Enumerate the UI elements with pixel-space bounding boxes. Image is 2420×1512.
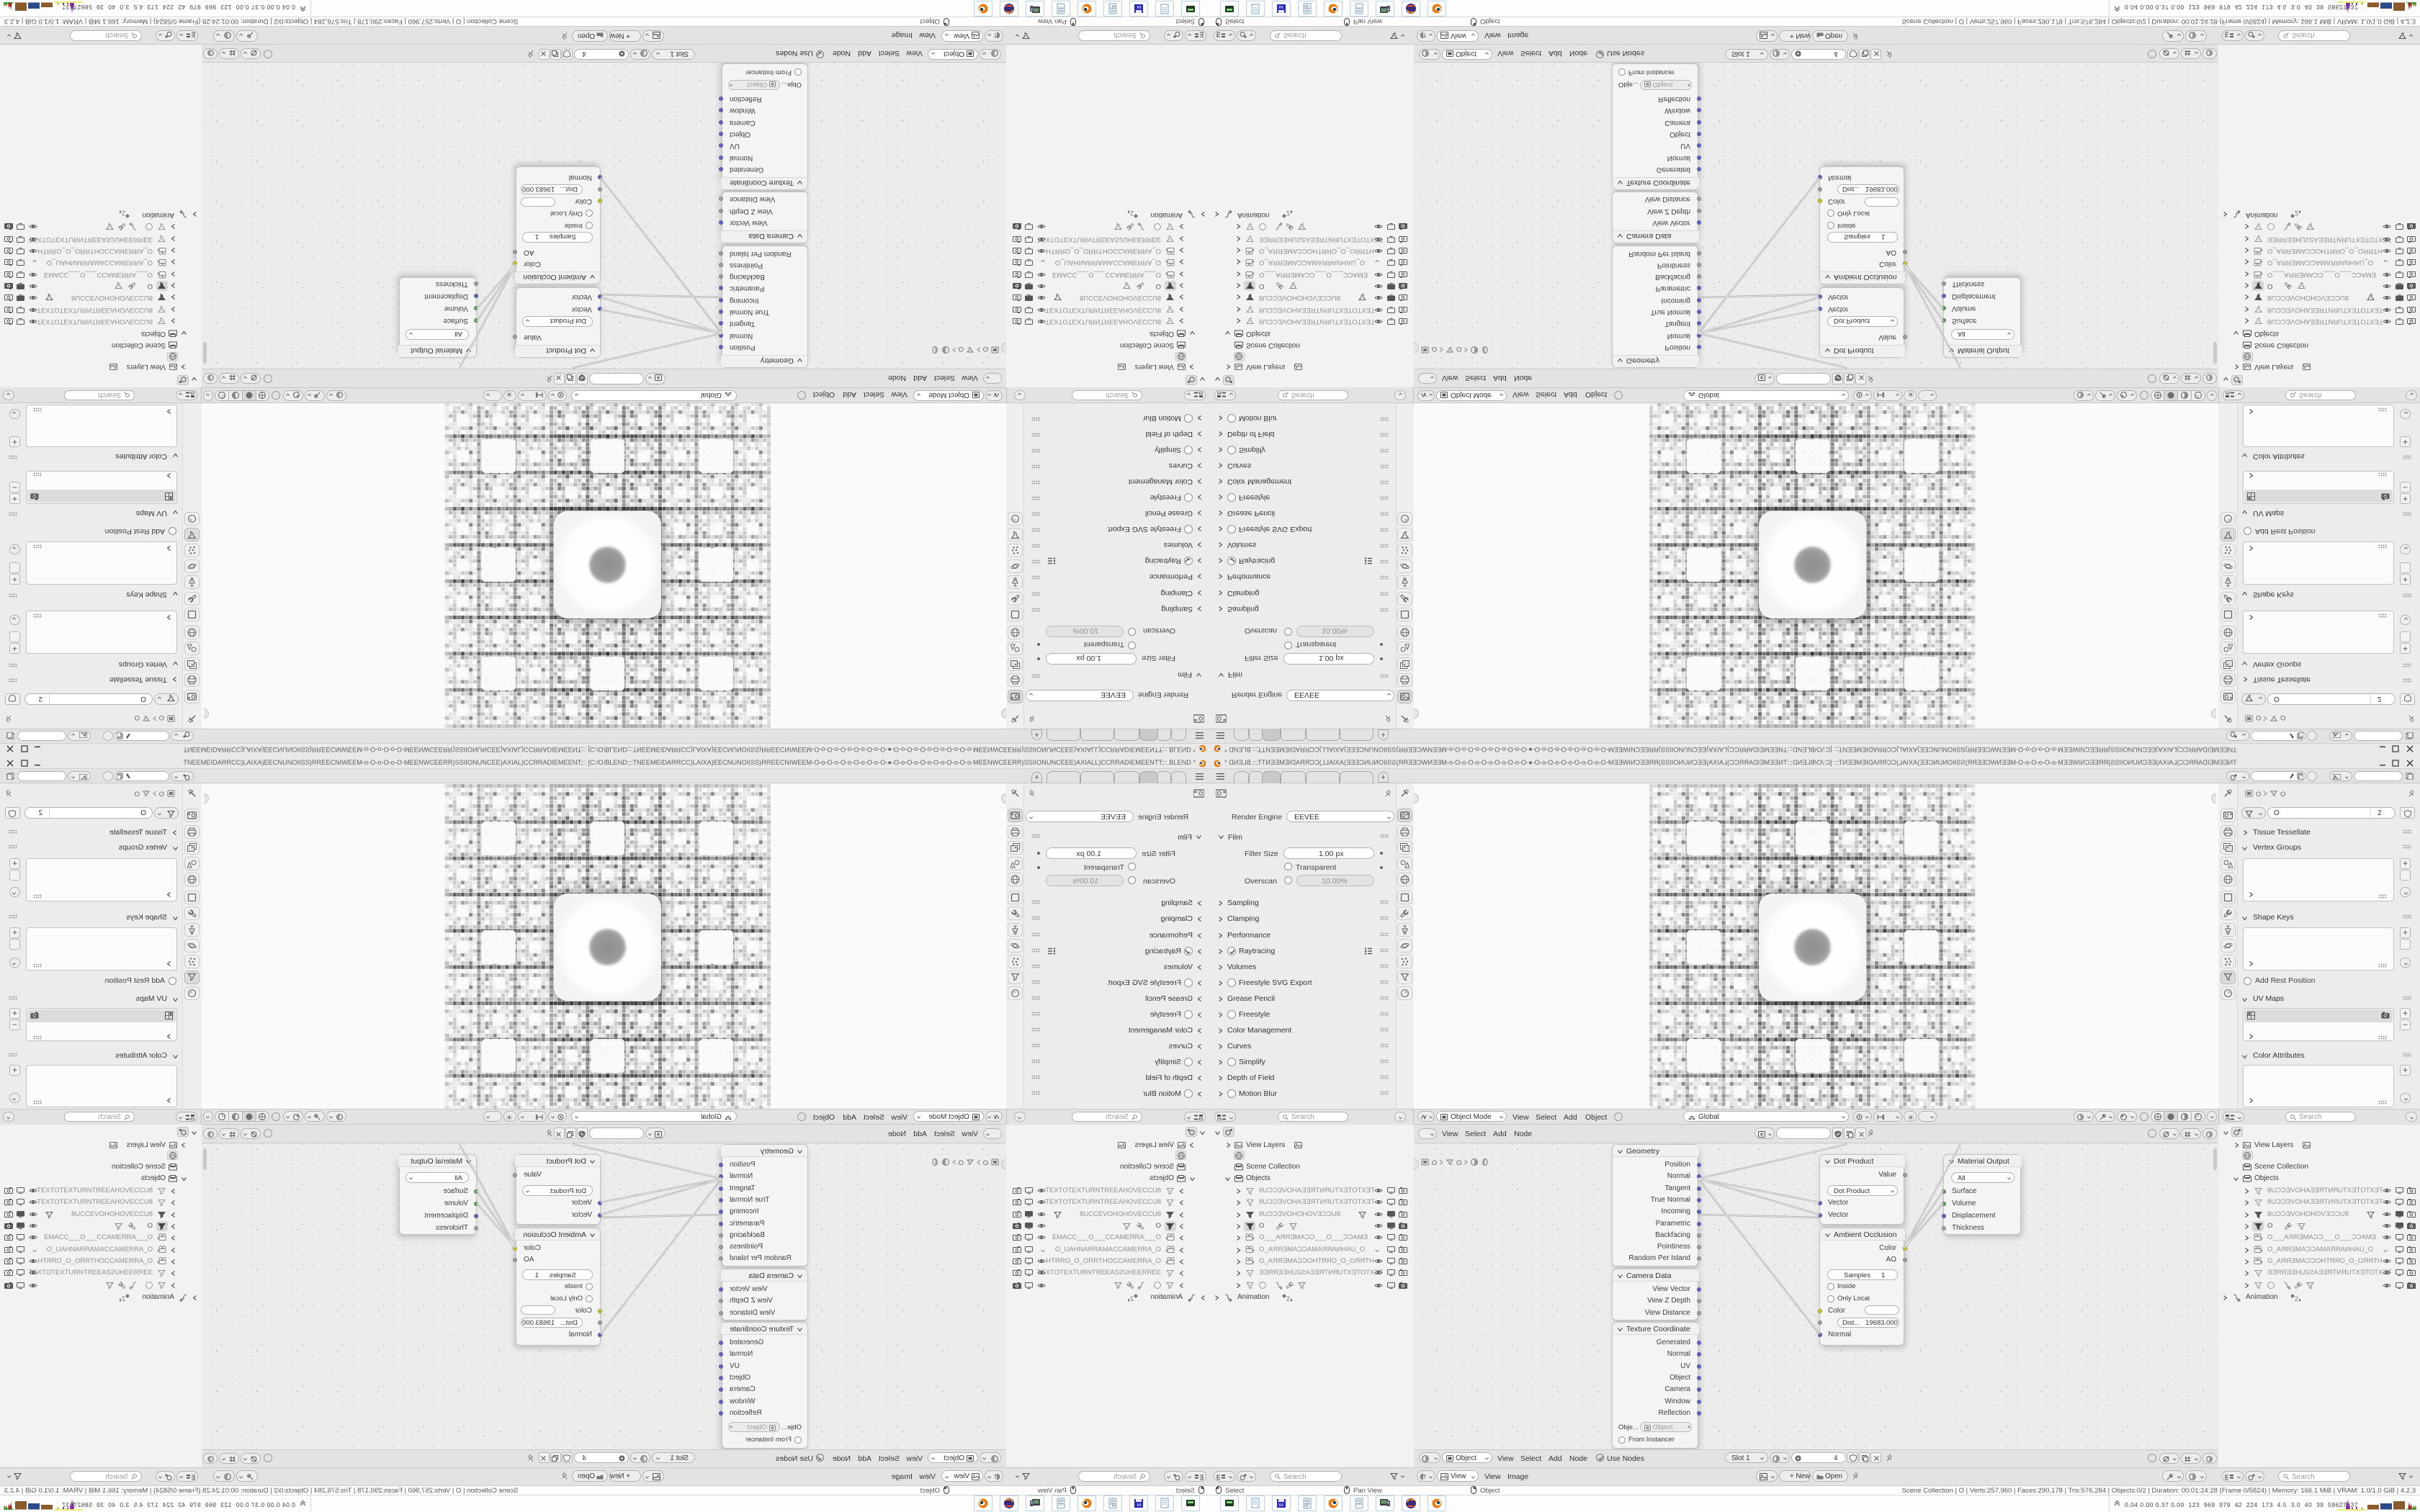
svg-text:64: 64 <box>1137 4 1141 9</box>
svg-text:64: 64 <box>1137 1503 1141 1508</box>
svg-text:64: 64 <box>1279 4 1283 9</box>
svg-text:64: 64 <box>1279 1503 1283 1508</box>
